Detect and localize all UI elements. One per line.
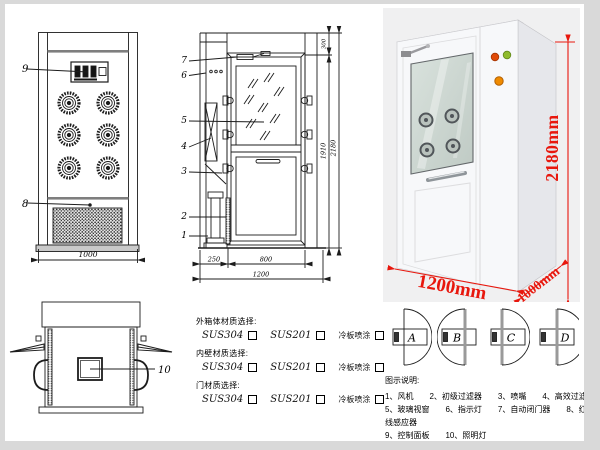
part-label-8: 8 [22, 199, 28, 210]
material-group-title: 门材质选择: [196, 380, 386, 391]
air-return-grille [53, 208, 122, 243]
material-option-label: 冷板喷涂 [338, 362, 370, 373]
material-option-label: 冷板喷涂 [338, 394, 370, 405]
green-indicator-light [503, 51, 511, 59]
door-handle [256, 160, 280, 164]
door-option-d: D [535, 305, 579, 369]
right-handle [134, 360, 148, 390]
material-option-label: SUS304 [202, 362, 243, 373]
material-checkbox[interactable] [248, 363, 257, 372]
part-label-2: 2 [180, 212, 187, 222]
nozzle-grid [59, 93, 118, 178]
part-label-9: 9 [22, 64, 29, 75]
legend-title: 图示说明: [385, 374, 595, 387]
dim-inner-height: 1910 [320, 143, 328, 160]
top-view-drawing: 10 [2, 296, 196, 428]
dim-back-depth: 250 [207, 256, 220, 264]
front-view-drawing: 9 8 1000 [14, 26, 169, 270]
part-label-1: 1 [181, 231, 187, 241]
part-label-10: 10 [158, 365, 171, 376]
air-shower-spec-sheet: 9 8 1000 [0, 0, 600, 450]
door-option-letter: C [507, 332, 516, 345]
legend: 图示说明: 1、风机 2、初级过滤器 3、喷嘴 4、高效过滤器 5、玻璃视窗 6… [385, 374, 595, 442]
material-checkbox[interactable] [375, 395, 384, 404]
fan-duct [204, 192, 230, 248]
part-label-7: 7 [181, 56, 187, 66]
legend-line: 1、风机 2、初级过滤器 3、喷嘴 4、高效过滤器 [385, 390, 595, 403]
material-option-label: SUS201 [270, 330, 311, 341]
material-group-title: 外箱体材质选择: [196, 316, 386, 327]
part-label-6: 6 [181, 71, 187, 81]
product-photo: 2180mm 1200mm 1000mm [383, 8, 580, 302]
photo-dim-height: 2180mm [542, 114, 562, 181]
dim-total-width: 1200 [253, 271, 270, 279]
orange-button [495, 77, 503, 85]
material-option-label: SUS304 [202, 330, 243, 341]
dim-total-height: 2180 [330, 140, 338, 158]
dim-front-width: 1000 [78, 250, 97, 259]
legend-line: 5、玻璃视窗 6、指示灯 7、自动闭门器 8、红外线感应器 [385, 403, 595, 429]
material-checkbox[interactable] [248, 395, 257, 404]
door-option-c: C [486, 305, 530, 369]
material-option-label: SUS201 [270, 394, 311, 405]
door-option-letter: A [407, 332, 416, 345]
material-checkbox[interactable] [375, 331, 384, 340]
door-option-letter: B [452, 332, 461, 345]
material-option-label: 冷板喷涂 [338, 330, 370, 341]
material-selection: 外箱体材质选择: SUS304 SUS201 冷板喷涂 内壁材质选择: SUS3… [196, 316, 386, 412]
part-label-3: 3 [181, 167, 187, 177]
material-checkbox[interactable] [316, 395, 325, 404]
material-group-title: 内壁材质选择: [196, 348, 386, 359]
material-checkbox[interactable] [316, 331, 325, 340]
red-indicator-light [491, 53, 499, 61]
material-checkbox[interactable] [248, 331, 257, 340]
part-label-4: 4 [180, 142, 187, 152]
material-checkbox[interactable] [316, 363, 325, 372]
left-handle [34, 360, 48, 390]
side-view-drawing: 7 6 5 4 3 2 1 300 1910 2180 250 800 1200 [168, 26, 344, 288]
door-option-b: B [437, 305, 481, 369]
door-swing-options: A B C D [388, 305, 584, 369]
legend-line: 9、控制面板 10、照明灯 [385, 429, 595, 442]
material-option-label: SUS304 [202, 394, 243, 405]
door-option-a: A [388, 305, 432, 369]
material-option-label: SUS201 [270, 362, 311, 373]
part-label-5: 5 [181, 116, 187, 126]
glass-hatch-marks [244, 73, 284, 140]
dim-door-width: 800 [260, 256, 272, 264]
door-option-letter: D [560, 332, 570, 345]
dim-top-section: 300 [322, 38, 328, 49]
material-checkbox[interactable] [375, 363, 384, 372]
